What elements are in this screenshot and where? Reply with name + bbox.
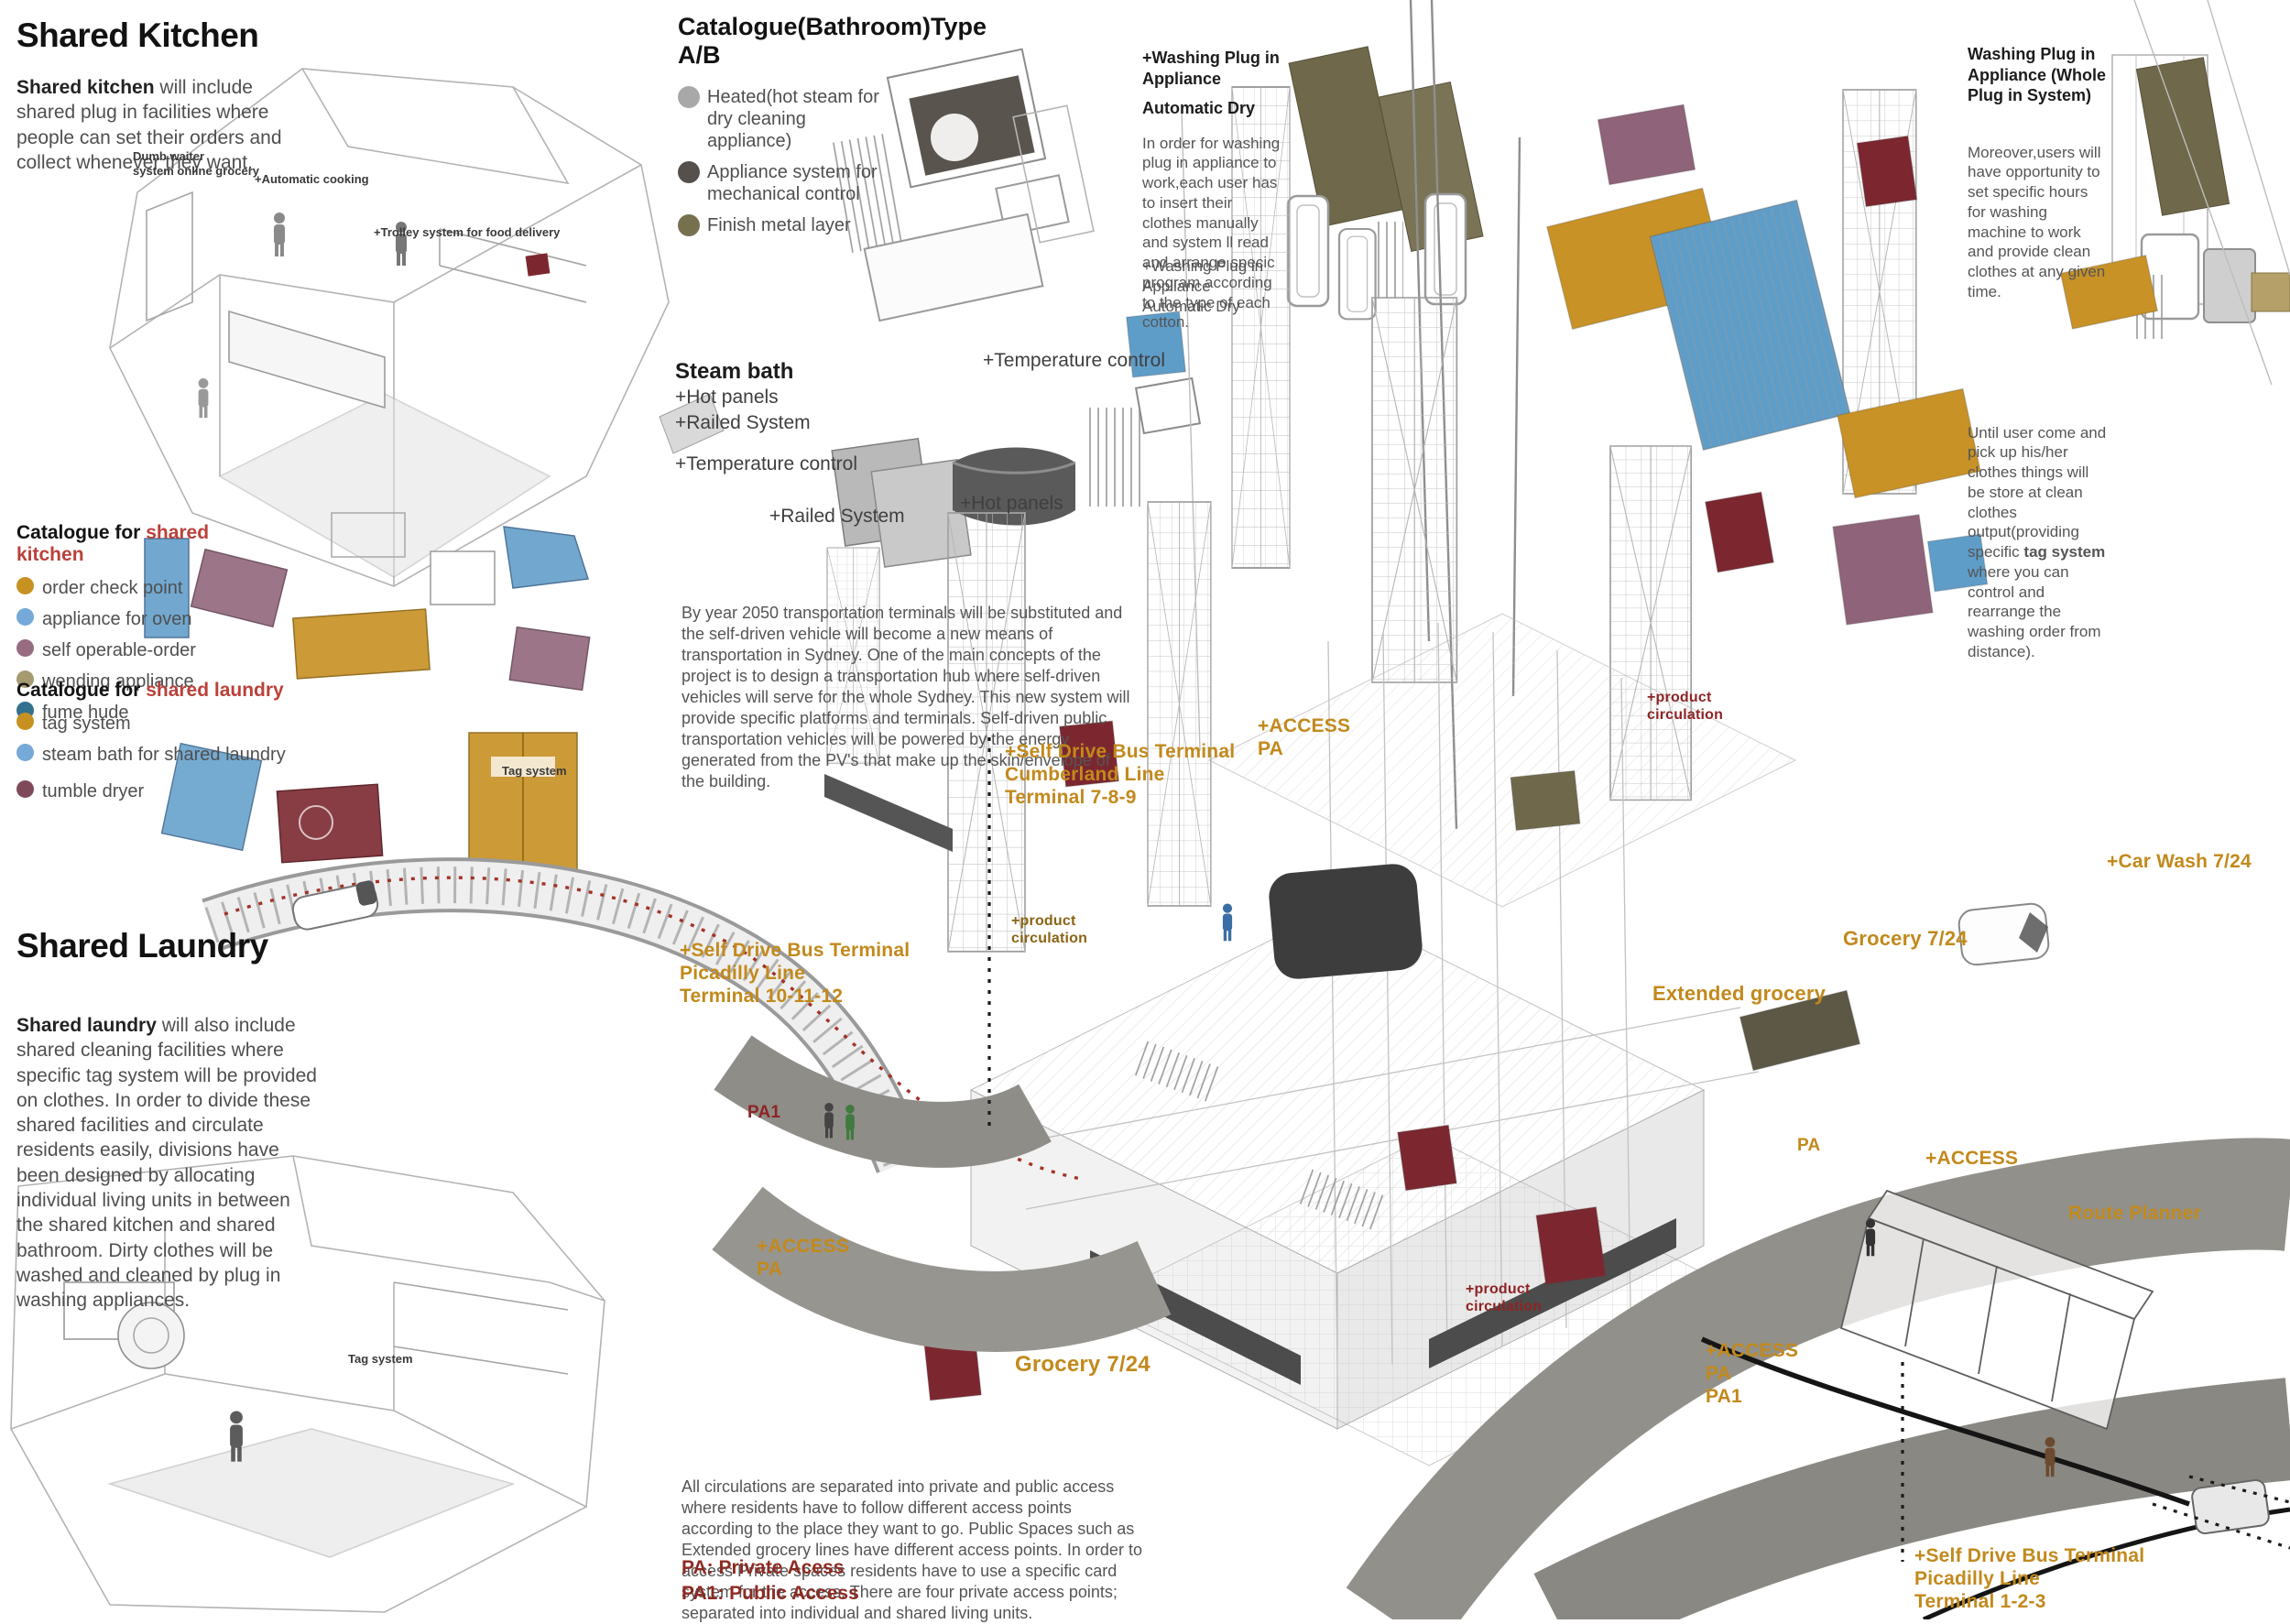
legend-dot-tumble-dryer (16, 780, 34, 798)
washing-plug-title: +Washing Plug in (1142, 49, 1280, 67)
axon-label-grocery-right: Grocery 7/24 (1843, 927, 1968, 951)
legend-dot-oven (16, 608, 34, 626)
legend-item: order check point (16, 577, 255, 599)
legend-dot-self-order (16, 639, 34, 657)
axon-label-bus-terminal-picadilly-1-2-3: +Self Drive Bus TerminalPicadilly LineTe… (1914, 1544, 2144, 1614)
legend-item: Appliance system for mechanical control (678, 161, 889, 205)
steam-feature: +Hot panels (675, 385, 895, 410)
steam-bath-section: Steam bath +Hot panels +Railed System +T… (675, 359, 895, 477)
shared-laundry-section: Shared Laundry Shared laundry will also … (16, 927, 319, 1313)
legend-dot-order-check (16, 577, 34, 594)
axon-label-access-pa-pa1: +ACCESSPAPA1 (1706, 1339, 1798, 1409)
axon-label-product-circulation-3: +productcirculation (1466, 1281, 1542, 1315)
axon-label-bus-terminal-cumberland: +Self Drive Bus TerminalCumberland LineT… (1005, 740, 1235, 810)
sketch-label-tag-system-cabinet: Tag system (502, 764, 567, 779)
legend-item: self operable-order (16, 639, 255, 661)
axon-label-extended-grocery: Extended grocery (1652, 982, 1826, 1006)
catalogue-kitchen-title: Catalogue for shared kitchen (16, 522, 255, 566)
shared-kitchen-title: Shared Kitchen (16, 16, 291, 55)
axon-label-bus-terminal-picadilly-10-11-12: +Self Drive Bus TerminalPicadilly LineTe… (680, 939, 910, 1008)
axon-label-pa-right: PA (1797, 1136, 1820, 1157)
axon-label-car-wash: +Car Wash 7/24 (2107, 850, 2252, 873)
shared-laundry-body: Shared laundry will also include shared … (16, 1013, 319, 1313)
legend-item: Finish metal layer (678, 214, 889, 236)
steam-diagram-label-temperature: +Temperature control (983, 350, 1165, 372)
legend-item: tag system (16, 713, 291, 735)
steam-feature: +Temperature control (675, 452, 895, 477)
catalogue-bathroom-title: Catalogue(Bathroom)Type A/B (678, 13, 953, 70)
axon-label-access-pa-left: +ACCESSPA (757, 1235, 849, 1281)
axon-label-product-circulation-1: +productcirculation (1647, 689, 1723, 724)
catalogue-bathroom-section: Catalogue(Bathroom)Type A/B Heated(hot s… (678, 13, 953, 245)
legend-dot-steam-bath (16, 744, 34, 761)
legend-dot-heated (678, 86, 700, 108)
steam-diagram-label-railed: +Railed System (769, 506, 905, 528)
pa-legend: PA: Private Acess PA1: Public Access (682, 1555, 859, 1608)
sketch-label-trolley-food-delivery: +Trolley system for food delivery (374, 225, 560, 240)
axon-label-route-planner: Route Planner (2068, 1202, 2201, 1225)
legend-item: appliance for oven (16, 608, 255, 630)
legend-dot-tag-system (16, 713, 34, 730)
sketch-label-automatic-cooking: +Automatic cooking (255, 172, 369, 187)
steam-diagram-label-hot-panels: +Hot panels (960, 493, 1063, 515)
catalogue-laundry-title: Catalogue for shared laundry (16, 680, 291, 702)
axon-label-pa1-left: PA1 (747, 1103, 780, 1124)
washing-whole-para1: Moreover,users will have opportunity to … (1968, 143, 2107, 302)
axon-label-access-pa-top: +ACCESSPA (1258, 714, 1350, 760)
sketch-label-dumb-waiter: Dumb waitersystem online grocery (133, 149, 259, 178)
steam-feature: +Railed System (675, 410, 895, 436)
washing-whole-title: Washing Plug in Appliance (Whole Plug in… (1968, 44, 2107, 106)
washing-whole-section: Washing Plug in Appliance (Whole Plug in… (1968, 44, 2107, 662)
shared-laundry-title: Shared Laundry (16, 927, 319, 965)
axon-label-product-circulation-2: +productcirculation (1011, 912, 1087, 947)
legend-item: tumble dryer (16, 780, 291, 802)
legend-dot-finish (678, 214, 700, 236)
presentation-board: { "colors": { "gold": "#c2891c", "darkre… (0, 0, 2290, 1619)
pa-private: PA: Private Acess (682, 1555, 859, 1581)
catalogue-laundry-section: Catalogue for shared laundry tag system … (16, 680, 291, 812)
axon-label-grocery-left: Grocery 7/24 (1015, 1352, 1150, 1379)
sketch-label-tag-system-wall: Tag system (348, 1352, 413, 1367)
washing-plug-caption: +Washing Plug in Appliance Automatic Dry (1142, 256, 1325, 316)
washing-plug-subtitle: Automatic Dry (1142, 98, 1289, 119)
axon-label-access-right: +ACCESS (1925, 1147, 2018, 1170)
legend-item: Heated(hot steam for dry cleaning applia… (678, 86, 889, 152)
pa1-public: PA1: Public Access (682, 1581, 859, 1607)
legend-item: steam bath for shared laundry (16, 744, 291, 766)
legend-dot-appliance (678, 161, 700, 183)
steam-bath-title: Steam bath (675, 359, 895, 385)
washing-whole-para2: Until user come and pick up his/her clot… (1968, 423, 2107, 662)
